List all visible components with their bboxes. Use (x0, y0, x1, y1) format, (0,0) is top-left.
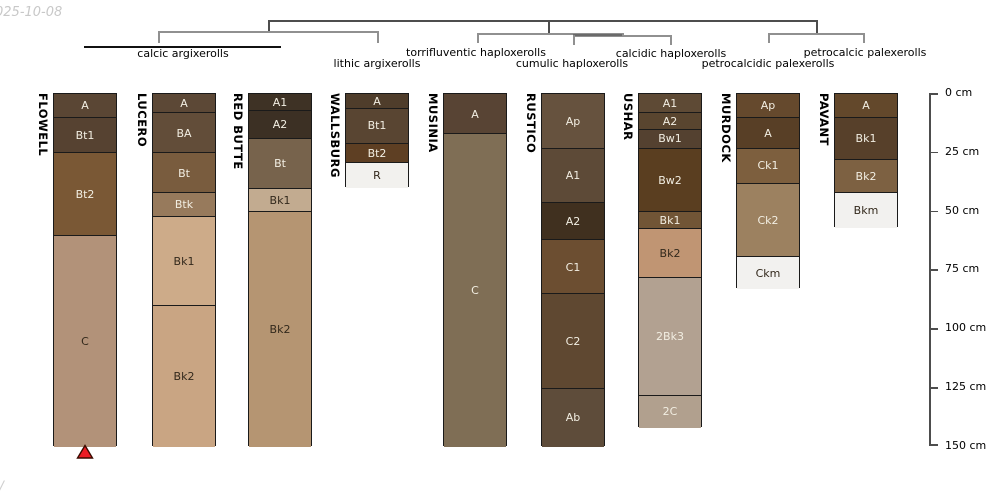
horizon-label: 2C (663, 406, 678, 417)
horizon-label: Bt1 (368, 120, 387, 131)
horizon-label: Ab (566, 412, 581, 423)
profile-name-label: MURDOCK (719, 93, 733, 163)
horizon-label: Bk1 (856, 133, 877, 144)
profile-column: A1A2BtBk1Bk2 (248, 93, 312, 446)
dendrogram-branch-line (573, 34, 622, 36)
dendrogram-branch-line (768, 33, 863, 35)
horizon-label: Bk1 (270, 195, 291, 206)
profile-name-label: RUSTICO (524, 93, 538, 153)
soil-horizon: Ab (542, 388, 604, 447)
soil-horizon: A2 (639, 112, 701, 129)
soil-horizon: C (54, 235, 116, 447)
soil-horizon: Bk1 (249, 188, 311, 212)
profile-name-label: LUCERO (135, 93, 149, 147)
horizon-label: A (471, 109, 479, 120)
depth-axis-tick-label: 0 cm (945, 87, 972, 99)
horizon-label: A (81, 100, 89, 111)
soil-horizon: C1 (542, 239, 604, 294)
profile-column: ApA1A2C1C2Ab (541, 93, 605, 446)
dendrogram-branch-line (268, 20, 270, 31)
profile-name-label: PAVANT (817, 93, 831, 146)
soil-horizon: Ap (542, 94, 604, 148)
soil-horizon: Bkm (835, 192, 897, 228)
depth-axis-tick-label: 100 cm (945, 322, 986, 334)
dendrogram-branch-line (377, 31, 379, 43)
dendrogram-branch-line (816, 20, 818, 33)
soil-horizon: Ck1 (737, 148, 799, 184)
dendrogram-branch-line (622, 33, 624, 35)
dendrogram-branch-line (670, 35, 672, 45)
horizon-label: Bk2 (660, 248, 681, 259)
soil-horizon: Bk2 (153, 305, 215, 447)
horizon-label: Bw2 (658, 175, 682, 186)
profile-column: ABt1Bt2R (345, 93, 409, 187)
soil-horizon: R (346, 162, 408, 188)
soil-horizon: C (444, 133, 506, 447)
horizon-label: Ckm (756, 268, 781, 279)
taxonomy-class-label: cumulic haploxerolls (516, 57, 628, 70)
soil-profile-figure: 025-10-08 / calcic argixerollslithic arg… (0, 0, 1000, 500)
horizon-label: Bk2 (174, 371, 195, 382)
soil-horizon: Bt (249, 138, 311, 188)
horizon-label: Bt (178, 168, 190, 179)
horizon-label: Bw1 (658, 133, 682, 144)
horizon-label: Bk2 (270, 324, 291, 335)
soil-horizon: BA (153, 112, 215, 153)
horizon-label: A (180, 98, 188, 109)
soil-horizon: A2 (249, 110, 311, 139)
depth-axis-tick (929, 328, 938, 330)
soil-horizon: Ckm (737, 256, 799, 290)
horizon-label: C1 (566, 262, 581, 273)
depth-axis-tick-label: 125 cm (945, 381, 986, 393)
dendrogram-branch-line (863, 33, 865, 43)
soil-horizon: A (54, 94, 116, 118)
horizon-label: Bt1 (76, 130, 95, 141)
depth-axis-tick (929, 211, 938, 213)
soil-horizon: Bk2 (639, 228, 701, 278)
horizon-label: A (862, 100, 870, 111)
soil-horizon: Bk1 (835, 117, 897, 160)
soil-horizon: A1 (249, 94, 311, 110)
soil-horizon: A (444, 94, 506, 134)
dendrogram-branch-line (268, 20, 817, 22)
depth-axis-tick (929, 387, 938, 389)
depth-axis-tick-label: 25 cm (945, 146, 979, 158)
horizon-label: A2 (663, 116, 678, 127)
dendrogram-branch-line (548, 20, 550, 33)
soil-horizon: A (835, 94, 897, 118)
soil-horizon: Bw2 (639, 148, 701, 212)
depth-axis-tick-label: 75 cm (945, 263, 979, 275)
horizon-label: Ck2 (757, 215, 778, 226)
soil-horizon: Bk2 (835, 159, 897, 193)
soil-horizon: Btk (153, 192, 215, 216)
soil-horizon: A1 (542, 148, 604, 203)
horizon-label: A2 (566, 216, 581, 227)
profile-name-label: USHAR (621, 93, 635, 141)
soil-horizon: A2 (542, 202, 604, 240)
continues-below-marker-icon (76, 444, 94, 464)
profile-column: ABt1Bt2C (53, 93, 117, 446)
taxonomy-class-label: calcic argixerolls (137, 47, 228, 60)
soil-horizon: Bw1 (639, 129, 701, 148)
profile-name-label: MUSINIA (426, 93, 440, 153)
profile-column: AC (443, 93, 507, 446)
depth-axis-tick-label: 150 cm (945, 440, 986, 452)
soil-horizon: C2 (542, 293, 604, 388)
horizon-label: Bk1 (174, 256, 195, 267)
dendrogram-branch-line (573, 35, 575, 45)
soil-horizon: Bt2 (54, 152, 116, 235)
profile-name-label: FLOWELL (36, 93, 50, 156)
depth-axis-tick-label: 50 cm (945, 205, 979, 217)
depth-axis-tick (929, 152, 938, 154)
horizon-label: Bk1 (660, 215, 681, 226)
soil-horizon: A (737, 117, 799, 148)
horizon-label: Bt (274, 158, 286, 169)
soil-horizon: Ap (737, 94, 799, 118)
soil-horizon: Ck2 (737, 183, 799, 257)
horizon-label: Ap (566, 116, 581, 127)
horizon-label: A (764, 128, 772, 139)
horizon-label: A2 (273, 119, 288, 130)
soil-horizon: Bk2 (249, 211, 311, 447)
horizon-label: C2 (566, 336, 581, 347)
horizon-label: 2Bk3 (656, 331, 684, 342)
soil-horizon: A (346, 94, 408, 108)
profile-column: A1A2Bw1Bw2Bk1Bk22Bk32C (638, 93, 702, 427)
horizon-label: C (81, 336, 89, 347)
horizon-label: BA (176, 128, 191, 139)
watermark-fragment: / (0, 479, 4, 495)
dendrogram-branch-line (768, 33, 770, 43)
profile-column: ApACk1Ck2Ckm (736, 93, 800, 288)
horizon-label: Bkm (854, 205, 879, 216)
profile-column: ABk1Bk2Bkm (834, 93, 898, 227)
horizon-label: A1 (566, 170, 581, 181)
horizon-label: Bt2 (368, 148, 387, 159)
profile-column: ABABtBtkBk1Bk2 (152, 93, 216, 446)
profile-name-label: RED BUTTE (231, 93, 245, 170)
soil-horizon: Bt2 (346, 143, 408, 162)
horizon-label: Bt2 (76, 189, 95, 200)
horizon-label: Ap (761, 100, 776, 111)
horizon-label: A1 (663, 98, 678, 109)
soil-horizon: 2C (639, 395, 701, 429)
soil-horizon: Bt (153, 152, 215, 193)
depth-axis-tick (929, 444, 938, 446)
dendrogram-branch-line (158, 31, 377, 33)
horizon-label: Bk2 (856, 171, 877, 182)
soil-horizon: Bt1 (54, 117, 116, 153)
soil-horizon: Bk1 (153, 216, 215, 306)
dendrogram-branch-line (477, 33, 479, 43)
dendrogram-branch-line (158, 31, 160, 43)
soil-horizon: A (153, 94, 215, 113)
depth-axis-tick (929, 93, 938, 95)
soil-horizon: 2Bk3 (639, 277, 701, 395)
depth-axis-tick (929, 269, 938, 271)
horizon-label: Ck1 (757, 160, 778, 171)
profile-name-label: WALLSBURG (328, 93, 342, 178)
horizon-label: A (373, 96, 381, 107)
taxonomy-class-label: petrocalcic palexerolls (804, 46, 927, 59)
horizon-label: R (373, 170, 381, 181)
horizon-label: Btk (175, 199, 193, 210)
horizon-label: A1 (273, 97, 288, 108)
soil-horizon: A1 (639, 94, 701, 113)
soil-horizon: Bk1 (639, 211, 701, 228)
horizon-label: C (471, 285, 479, 296)
soil-horizon: Bt1 (346, 108, 408, 144)
watermark-date: 025-10-08 (0, 5, 62, 20)
